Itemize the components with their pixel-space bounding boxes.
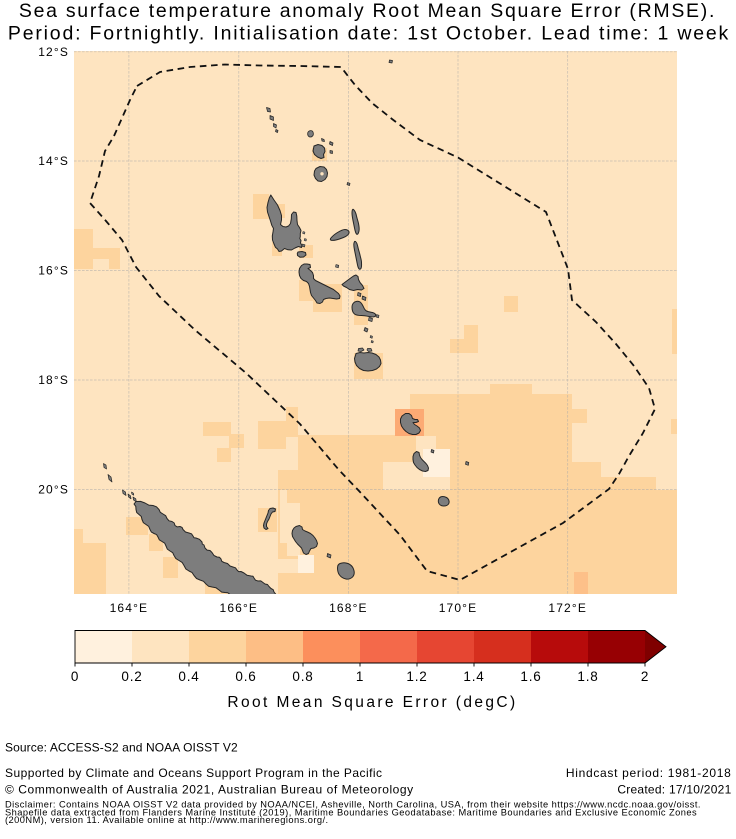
svg-text:12°S: 12°S: [38, 45, 69, 59]
svg-text:Root Mean Square Error (degC): Root Mean Square Error (degC): [227, 694, 517, 711]
svg-text:168°E: 168°E: [329, 601, 368, 615]
svg-text:14°S: 14°S: [38, 154, 69, 168]
svg-text:0.2: 0.2: [121, 669, 142, 684]
svg-text:16°S: 16°S: [38, 264, 69, 278]
svg-text:0.6: 0.6: [235, 669, 256, 684]
svg-text:20°S: 20°S: [38, 483, 69, 497]
svg-text:170°E: 170°E: [439, 601, 478, 615]
svg-text:Source: ACCESS-S2 and NOAA OIS: Source: ACCESS-S2 and NOAA OISST V2: [5, 741, 238, 755]
svg-text:1.6: 1.6: [520, 669, 541, 684]
svg-text:1.8: 1.8: [577, 669, 598, 684]
svg-text:Hindcast period: 1981-2018: Hindcast period: 1981-2018: [566, 766, 732, 780]
svg-text:164°E: 164°E: [110, 601, 149, 615]
svg-text:© Commonwealth of Australia 20: © Commonwealth of Australia 2021, Austra…: [5, 783, 414, 797]
svg-text:Period: Fortnightly. Initialis: Period: Fortnightly. Initialisation date…: [8, 23, 730, 45]
svg-text:Created: 17/10/2021: Created: 17/10/2021: [617, 783, 731, 797]
svg-text:1.4: 1.4: [463, 669, 484, 684]
svg-text:18°S: 18°S: [38, 373, 69, 387]
svg-text:2: 2: [641, 669, 649, 684]
svg-text:1.2: 1.2: [406, 669, 427, 684]
svg-text:Supported by Climate and Ocean: Supported by Climate and Oceans Support …: [5, 766, 382, 780]
svg-text:(200NM), version 11. Available: (200NM), version 11. Available online at…: [5, 815, 329, 825]
svg-text:1: 1: [356, 669, 364, 684]
svg-text:0.4: 0.4: [178, 669, 199, 684]
svg-text:0: 0: [71, 669, 79, 684]
svg-text:0.8: 0.8: [292, 669, 313, 684]
svg-text:Sea surface temperature anomal: Sea surface temperature anomaly Root Mea…: [19, 0, 716, 22]
svg-text:172°E: 172°E: [548, 601, 587, 615]
svg-text:166°E: 166°E: [220, 601, 259, 615]
